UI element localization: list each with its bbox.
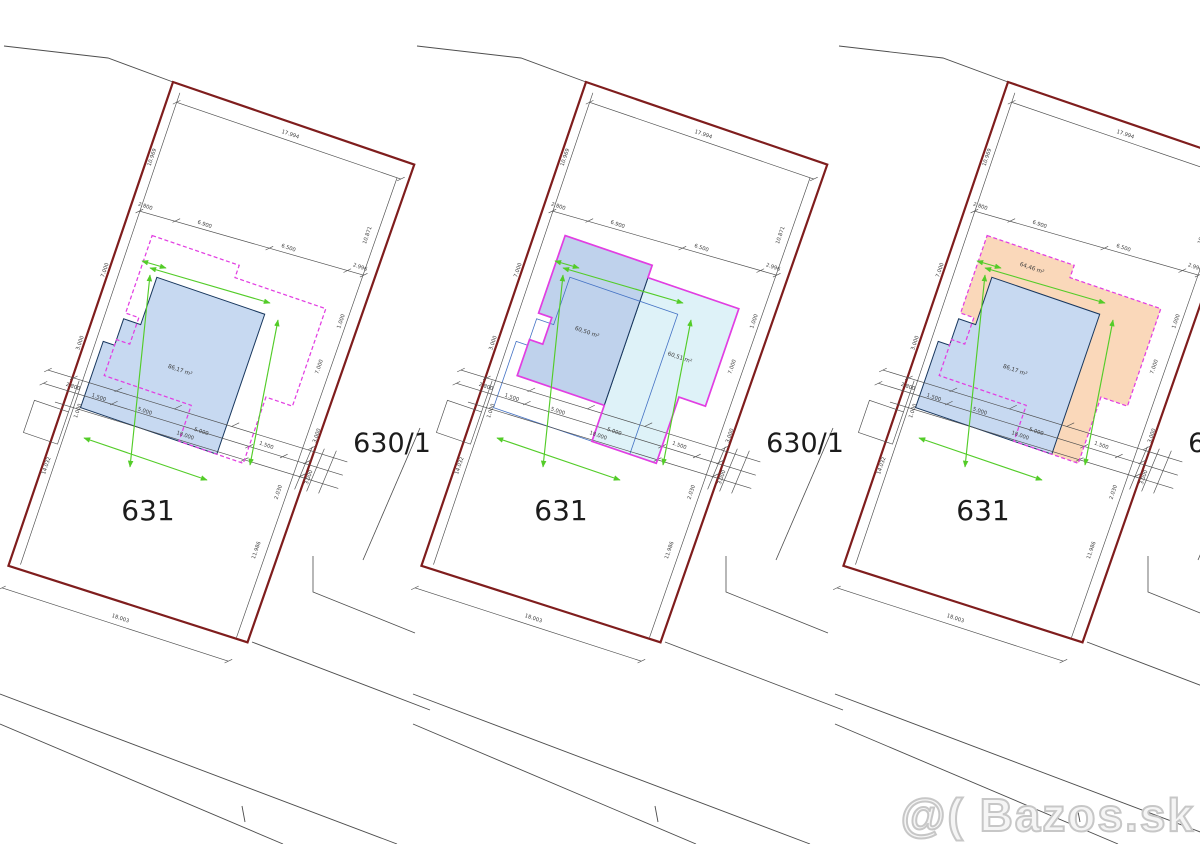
watermark: @( Bazos.sk bbox=[901, 792, 1195, 838]
dimension-tick bbox=[40, 379, 48, 387]
dimension-tick bbox=[833, 584, 841, 592]
road-line bbox=[1087, 642, 1200, 710]
site-plan-canvas: 17.99410.96914.03210.87111.98618.0032.80… bbox=[0, 0, 1200, 844]
terrain-line bbox=[4, 46, 173, 82]
parcel-number-main: 631 bbox=[956, 494, 1009, 527]
dimension-label: 18.003 bbox=[111, 613, 130, 625]
parcel-number-main: 631 bbox=[534, 494, 587, 527]
road-line bbox=[655, 806, 658, 822]
neighbor-parcel-boundary bbox=[1148, 556, 1200, 633]
site-plan-drawing: 17.99410.96914.03210.87111.98618.0032.80… bbox=[413, 0, 843, 844]
dimension-tick bbox=[879, 366, 887, 374]
dimension-label: 18.003 bbox=[524, 613, 543, 625]
dimension-tick bbox=[875, 379, 883, 387]
dimension-tick bbox=[44, 366, 52, 374]
dimension-label: 18.003 bbox=[946, 613, 965, 625]
site-plan-panel-existing: 17.99410.96914.03210.87111.98618.0032.80… bbox=[0, 0, 430, 844]
road-line bbox=[0, 694, 397, 844]
road-line bbox=[413, 724, 696, 844]
site-plan-panel-variant-two: 17.99410.96914.03210.87111.98618.0032.80… bbox=[413, 0, 843, 844]
plot-group: 17.99410.96914.03210.87111.98618.0032.80… bbox=[808, 73, 1200, 683]
terrain-line bbox=[839, 46, 1008, 82]
dimension-tick bbox=[457, 366, 465, 374]
parcel-number-neighbor: 630/1 bbox=[766, 428, 844, 459]
parcel-number-main: 631 bbox=[121, 494, 174, 527]
road-line bbox=[252, 642, 430, 710]
dimension-tick bbox=[453, 379, 461, 387]
parcel-number-neighbor: 630/1 bbox=[1188, 428, 1200, 459]
dimension-tick bbox=[225, 657, 233, 665]
dimension-tick bbox=[1060, 657, 1068, 665]
neighbor-parcel-boundary bbox=[313, 556, 415, 633]
road-line bbox=[242, 806, 245, 822]
dimension-tick bbox=[638, 657, 646, 665]
terrain-line bbox=[417, 46, 586, 82]
plot-group: 17.99410.96914.03210.87111.98618.0032.80… bbox=[0, 73, 445, 683]
dimension-tick bbox=[411, 584, 419, 592]
neighbor-parcel-boundary bbox=[726, 556, 828, 633]
road-line bbox=[413, 694, 810, 844]
site-plan-drawing: 17.99410.96914.03210.87111.98618.0032.80… bbox=[0, 0, 430, 844]
site-plan-drawing: 17.99410.96914.03210.87111.98618.0032.80… bbox=[835, 0, 1200, 844]
road-line bbox=[0, 724, 283, 844]
road-line bbox=[665, 642, 843, 710]
site-plan-panel-variant-three: 17.99410.96914.03210.87111.98618.0032.80… bbox=[835, 0, 1200, 844]
plot-group: 17.99410.96914.03210.87111.98618.0032.80… bbox=[386, 73, 859, 683]
